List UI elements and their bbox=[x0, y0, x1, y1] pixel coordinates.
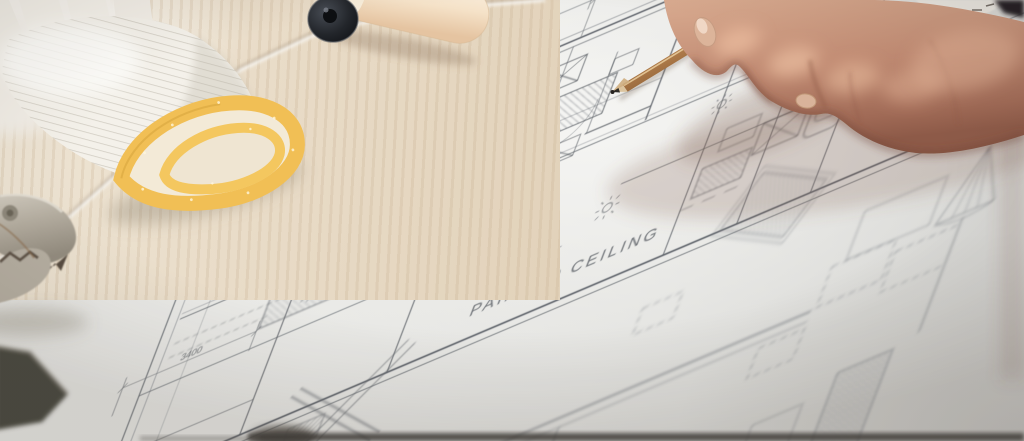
dark-gap-top-right bbox=[994, 0, 1024, 18]
pliers bbox=[0, 194, 88, 336]
paint-roller bbox=[308, 0, 495, 72]
scene-objects bbox=[0, 0, 1024, 441]
dark-tool-bottom-left bbox=[0, 346, 68, 430]
bottom-edge-shadow bbox=[248, 433, 1024, 441]
glove-highlight bbox=[0, 24, 140, 96]
work-glove bbox=[0, 0, 309, 230]
photo-blueprint-scene: 12315 2995 100 4410 3400 bbox=[0, 0, 1024, 441]
